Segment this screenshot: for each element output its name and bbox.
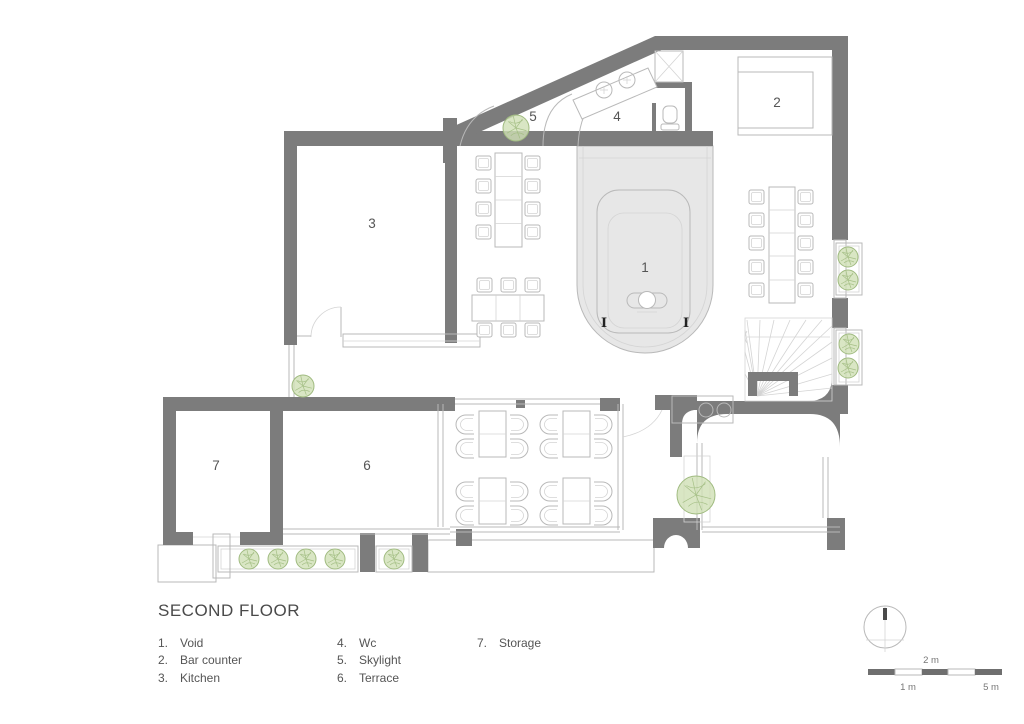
legend-label: Kitchen (180, 671, 220, 685)
legend-label: Skylight (359, 653, 401, 667)
arched-wall (653, 518, 700, 548)
terrace-furniture (456, 411, 612, 525)
legend-item-bar-counter: 2. Bar counter (158, 652, 242, 670)
legend-label: Wc (359, 636, 376, 650)
kitchen-left-wall (284, 131, 297, 345)
legend-item-kitchen: 3. Kitchen (158, 669, 242, 687)
scale-bar: 2 m 1 m 5 m (868, 655, 1002, 693)
legend-number: 1. (158, 636, 180, 650)
room-label-terrace: 6 (363, 458, 371, 473)
floor-plan-page: 1 2 3 4 5 6 7 I I 2 m 1 m 5 m SECOND FLO… (0, 0, 1024, 724)
room-label-skylight: 5 (529, 109, 537, 124)
legend-number: 4. (337, 636, 359, 650)
void-opening (577, 146, 713, 353)
room-label-kitchen: 3 (368, 216, 376, 231)
legend-item-skylight: 5. Skylight (337, 652, 401, 670)
scale-label-5m: 5 m (983, 682, 999, 693)
long-dining-table (769, 187, 795, 303)
legend-number: 7. (477, 636, 499, 650)
staircase (745, 318, 832, 401)
tree-icon (292, 375, 314, 397)
legend-item-wc: 4. Wc (337, 634, 401, 652)
scale-label-1m: 1 m (900, 682, 916, 693)
room-label-bar-counter: 2 (773, 95, 781, 110)
tree-icon (503, 115, 529, 141)
section-marker: I (601, 316, 607, 331)
legend-number: 5. (337, 653, 359, 667)
legend-label: Storage (499, 636, 541, 650)
legend-item-void: 1. Void (158, 634, 242, 652)
north-indicator-icon (864, 606, 906, 652)
section-marker: I (683, 316, 689, 331)
stair-newel (748, 372, 798, 381)
legend-label: Bar counter (180, 653, 242, 667)
toilet-icon (663, 106, 677, 123)
dining-table (472, 295, 544, 321)
legend-item-storage: 7. Storage (477, 634, 541, 652)
legend-number: 6. (337, 671, 359, 685)
paved-walkway-left (158, 545, 216, 582)
page-title: SECOND FLOOR (158, 601, 300, 621)
room-label-storage: 7 (212, 458, 220, 473)
large-tree-icon (677, 476, 715, 514)
scale-label-2m: 2 m (923, 655, 939, 666)
legend-item-terrace: 6. Terrace (337, 669, 401, 687)
bar-counter-outline (738, 57, 832, 135)
legend-column: 1. Void 2. Bar counter 3. Kitchen (158, 634, 242, 687)
legend-label: Terrace (359, 671, 399, 685)
floor-plan-drawing: 1 2 3 4 5 6 7 I I 2 m 1 m 5 m (0, 0, 1024, 724)
legend-column: 7. Storage (477, 634, 541, 652)
room-label-wc: 4 (613, 109, 621, 124)
legend-number: 2. (158, 653, 180, 667)
legend-number: 3. (158, 671, 180, 685)
room-label-void: 1 (641, 260, 649, 275)
kitchen-right-wall (445, 146, 457, 343)
legend-label: Void (180, 636, 203, 650)
legend-column: 4. Wc 5. Skylight 6. Terrace (337, 634, 401, 687)
